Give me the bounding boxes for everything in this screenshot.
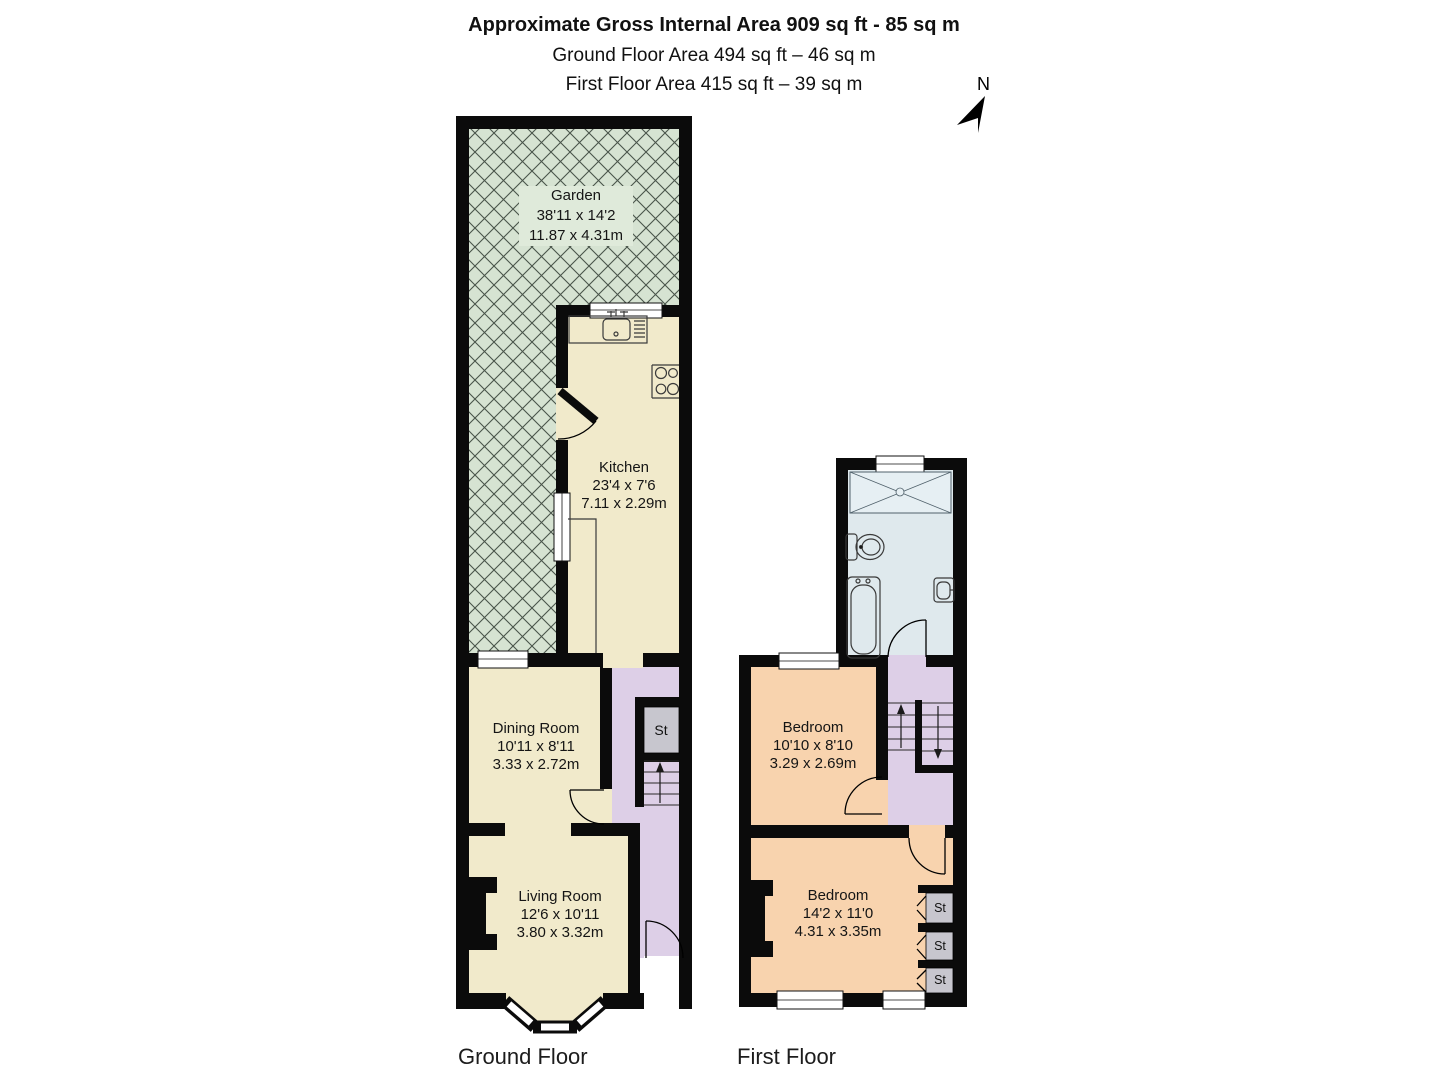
dining-room-label: Dining Room 10'11 x 8'11 3.33 x 2.72m — [493, 720, 580, 774]
bedroom-front-label: Bedroom 14'2 x 11'0 4.31 x 3.35m — [795, 887, 882, 941]
first-floor-caption: First Floor — [737, 1044, 836, 1070]
garden-label: Garden 38'11 x 14'2 11.87 x 4.31m — [519, 186, 633, 246]
kitchen-label: Kitchen 23'4 x 7'6 7.11 x 2.29m — [581, 459, 667, 513]
storage-1-label: St — [934, 901, 946, 915]
floorplan-page: Approximate Gross Internal Area 909 sq f… — [0, 0, 1440, 1080]
north-arrow-icon — [957, 96, 985, 133]
dining-room-window — [478, 651, 528, 668]
living-room-label: Living Room 12'6 x 10'11 3.80 x 3.32m — [517, 888, 604, 942]
storage-3-label: St — [934, 973, 946, 987]
ground-floor-caption: Ground Floor — [458, 1044, 588, 1070]
bedroom-rear-label: Bedroom 10'10 x 8'10 3.29 x 2.69m — [770, 719, 857, 773]
skylight-icon — [850, 472, 951, 513]
storage-2-label: St — [934, 939, 946, 953]
ground-storage-label: St — [654, 722, 667, 738]
floor-plan-drawing — [0, 0, 1440, 1080]
